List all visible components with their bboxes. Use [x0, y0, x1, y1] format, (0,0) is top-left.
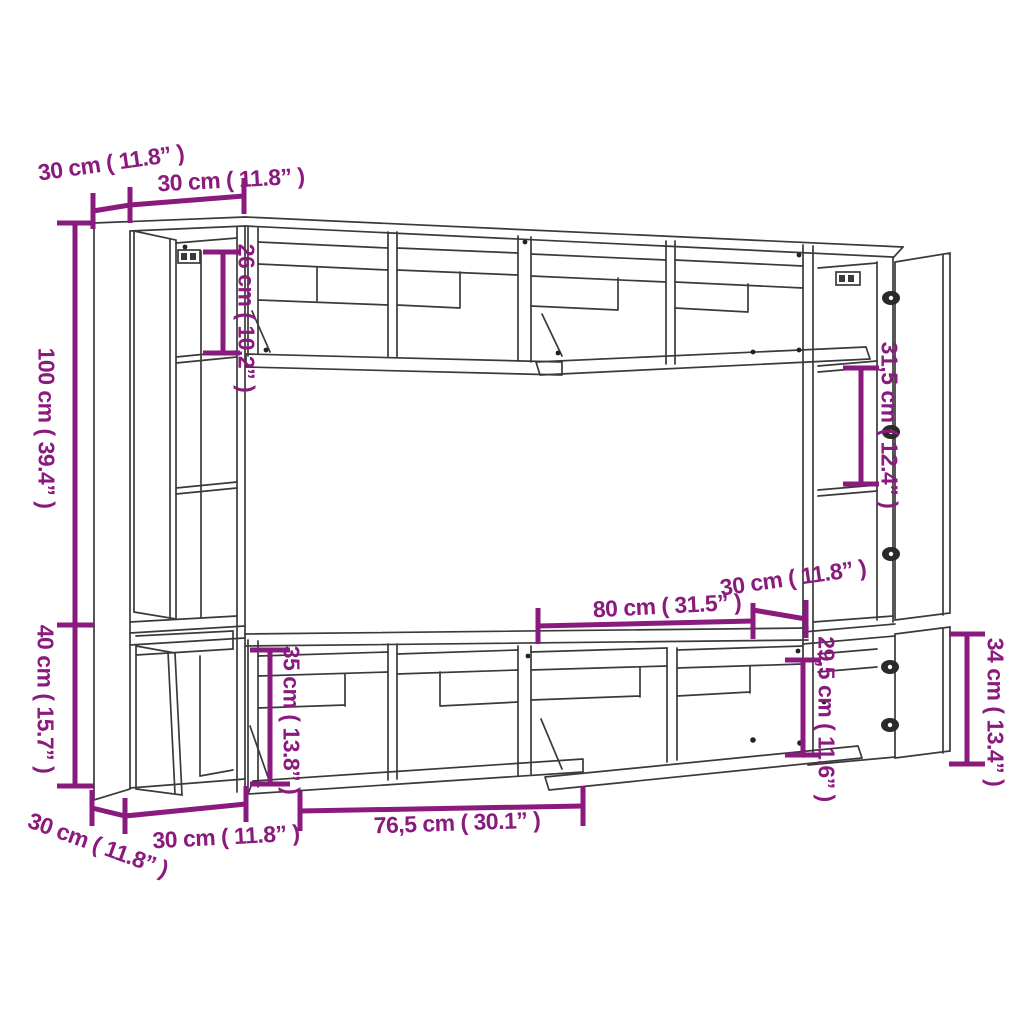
- dim-label-right-lower-34cm: 34 cm ( 13.4” ): [984, 638, 1007, 786]
- hinge-icon: [882, 291, 900, 305]
- hinge-icon: [881, 718, 899, 732]
- dim-label-lower-inner-35cm: 35 cm ( 13.8” ): [280, 646, 303, 794]
- dim-label-left-height-100cm: 100 cm ( 39.4” ): [35, 348, 58, 509]
- dim-label-flap-door-76-5cm: 76,5 cm ( 30.1” ): [373, 809, 540, 838]
- dim-label-right-shelf-31-5cm: 31,5 cm ( 12.4” ): [878, 342, 901, 509]
- hinge-icon: [882, 547, 900, 561]
- dimension-diagram: 30 cm ( 11.8” ) 30 cm ( 11.8” ) 26 cm ( …: [0, 0, 1024, 1024]
- dim-label-upper-inner-26cm: 26 cm ( 10.2” ): [235, 244, 258, 392]
- dim-label-left-lower-40cm: 40 cm ( 15.7” ): [34, 625, 57, 773]
- dim-label-right-inner-29-5cm: 29,5 cm ( 11.6” ): [815, 636, 838, 801]
- hinge-icon: [881, 660, 899, 674]
- dimension-lines: [57, 178, 985, 834]
